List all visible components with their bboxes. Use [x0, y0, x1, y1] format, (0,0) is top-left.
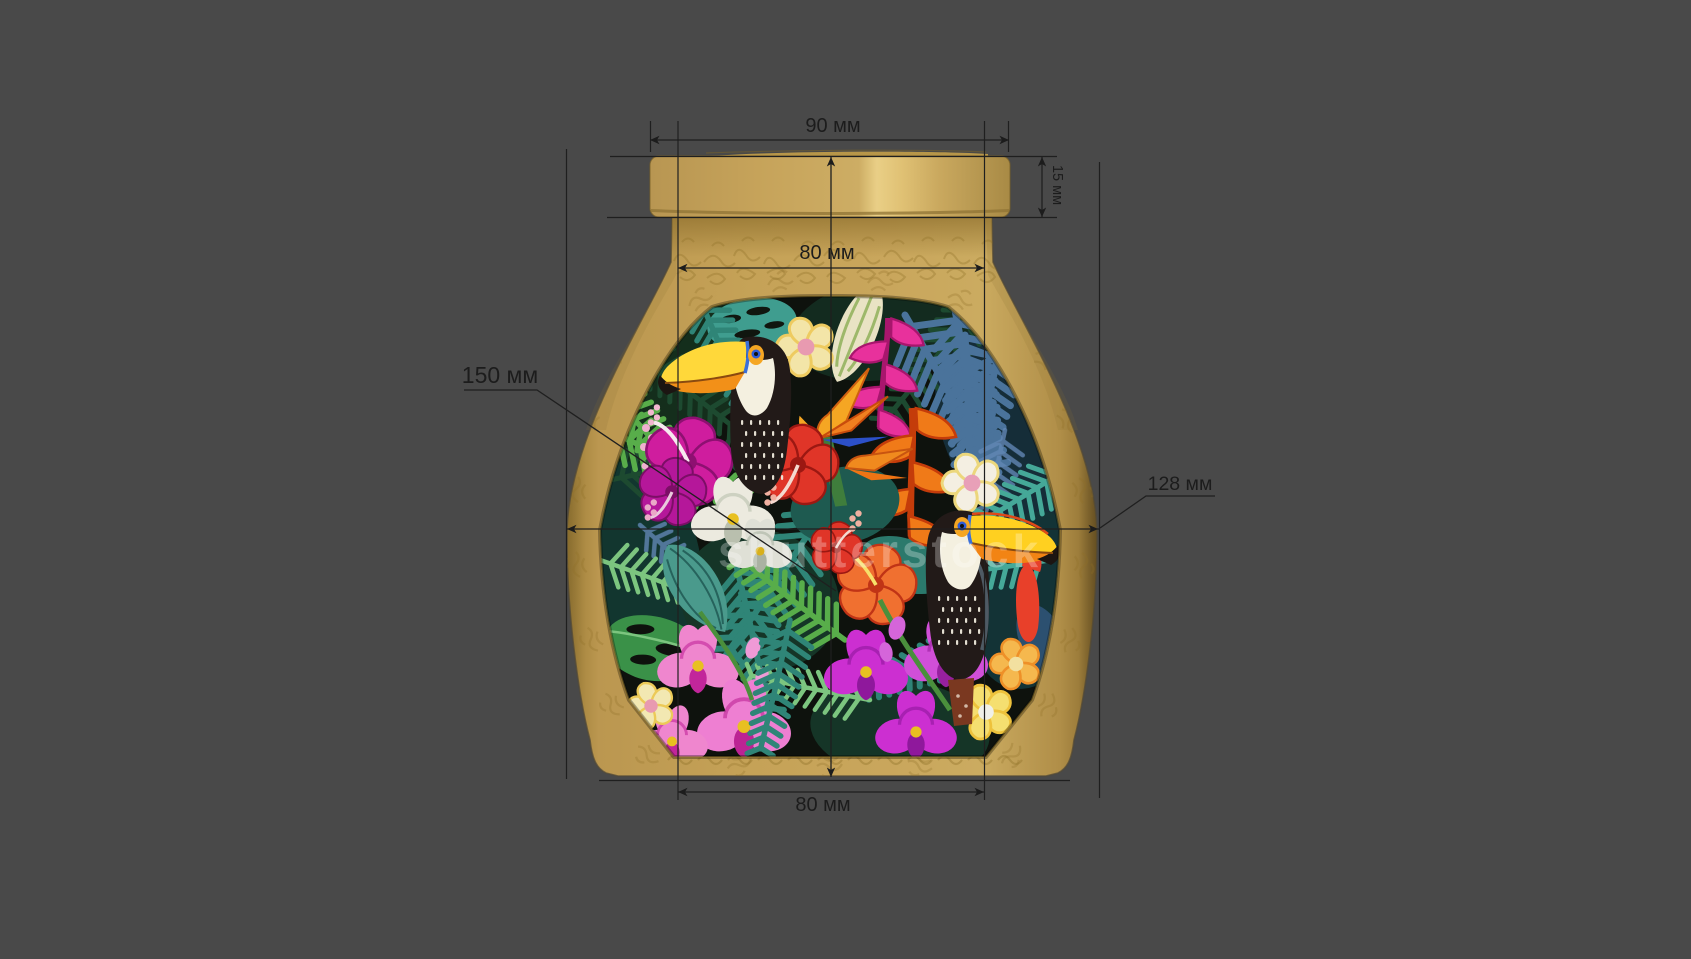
svg-text:80 мм: 80 мм: [795, 794, 850, 816]
svg-text:90 мм: 90 мм: [805, 115, 860, 137]
svg-text:150 мм: 150 мм: [462, 362, 538, 388]
svg-text:80 мм: 80 мм: [799, 242, 854, 264]
svg-text:128 мм: 128 мм: [1148, 473, 1213, 495]
svg-text:15 мм: 15 мм: [1049, 165, 1065, 205]
svg-text:shutterstock: shutterstock: [718, 525, 1042, 577]
